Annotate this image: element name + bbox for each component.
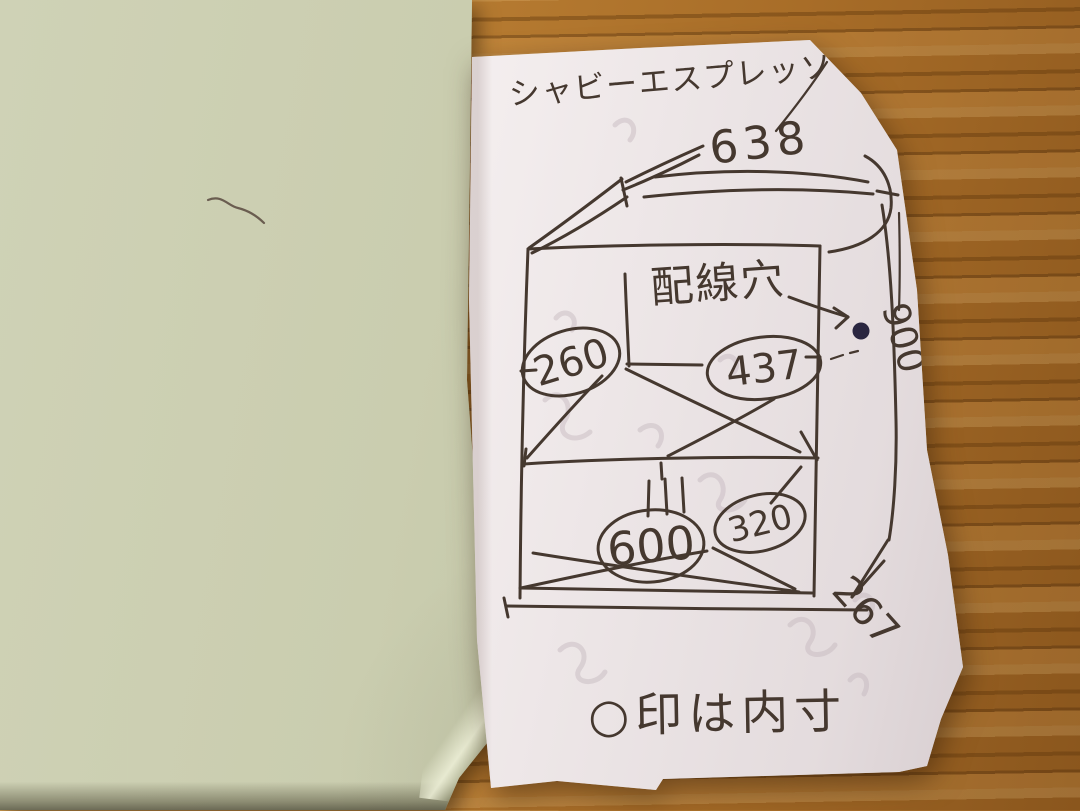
height-dimension: 900: [873, 205, 934, 540]
note-paper: シャビーエスプレッソ 638: [0, 0, 1080, 810]
wiring-hole-annotation: 配線穴: [649, 254, 870, 359]
upper-divider: [625, 274, 629, 366]
box-left-edge: [520, 249, 528, 598]
center-tick-marks: [648, 463, 684, 516]
depth-dimension: 267: [823, 540, 908, 655]
dimension-depth: 267: [823, 568, 908, 656]
wiring-hole-dot: [853, 323, 870, 340]
box-right-edge: [814, 246, 820, 596]
note-paper-shadow: シャビーエスプレッソ 638: [0, 0, 1080, 810]
legend-text: ○印は内寸: [588, 684, 848, 744]
product-name-text: シャビーエスプレッソ: [508, 49, 835, 113]
dimension-height: 900: [873, 298, 934, 378]
middle-shelf-line: [524, 457, 818, 464]
dimension-top-width: 638: [706, 110, 813, 175]
dimension-lower-width: 600: [605, 515, 697, 576]
circled-dimensions: 260 437 600 320: [514, 317, 825, 587]
dimension-upper-right: 437: [723, 342, 804, 397]
wiring-hole-label: 配線穴: [649, 254, 787, 313]
base-line: [506, 606, 867, 610]
sketch-drawing: シャビーエスプレッソ 638: [0, 0, 1080, 810]
box-top-edge: [528, 245, 820, 249]
upper-shelf-dash: [627, 364, 702, 365]
photo-of-note-on-table: { "note": { "title": "シャビーエスプレッソ", "dime…: [0, 0, 1080, 810]
